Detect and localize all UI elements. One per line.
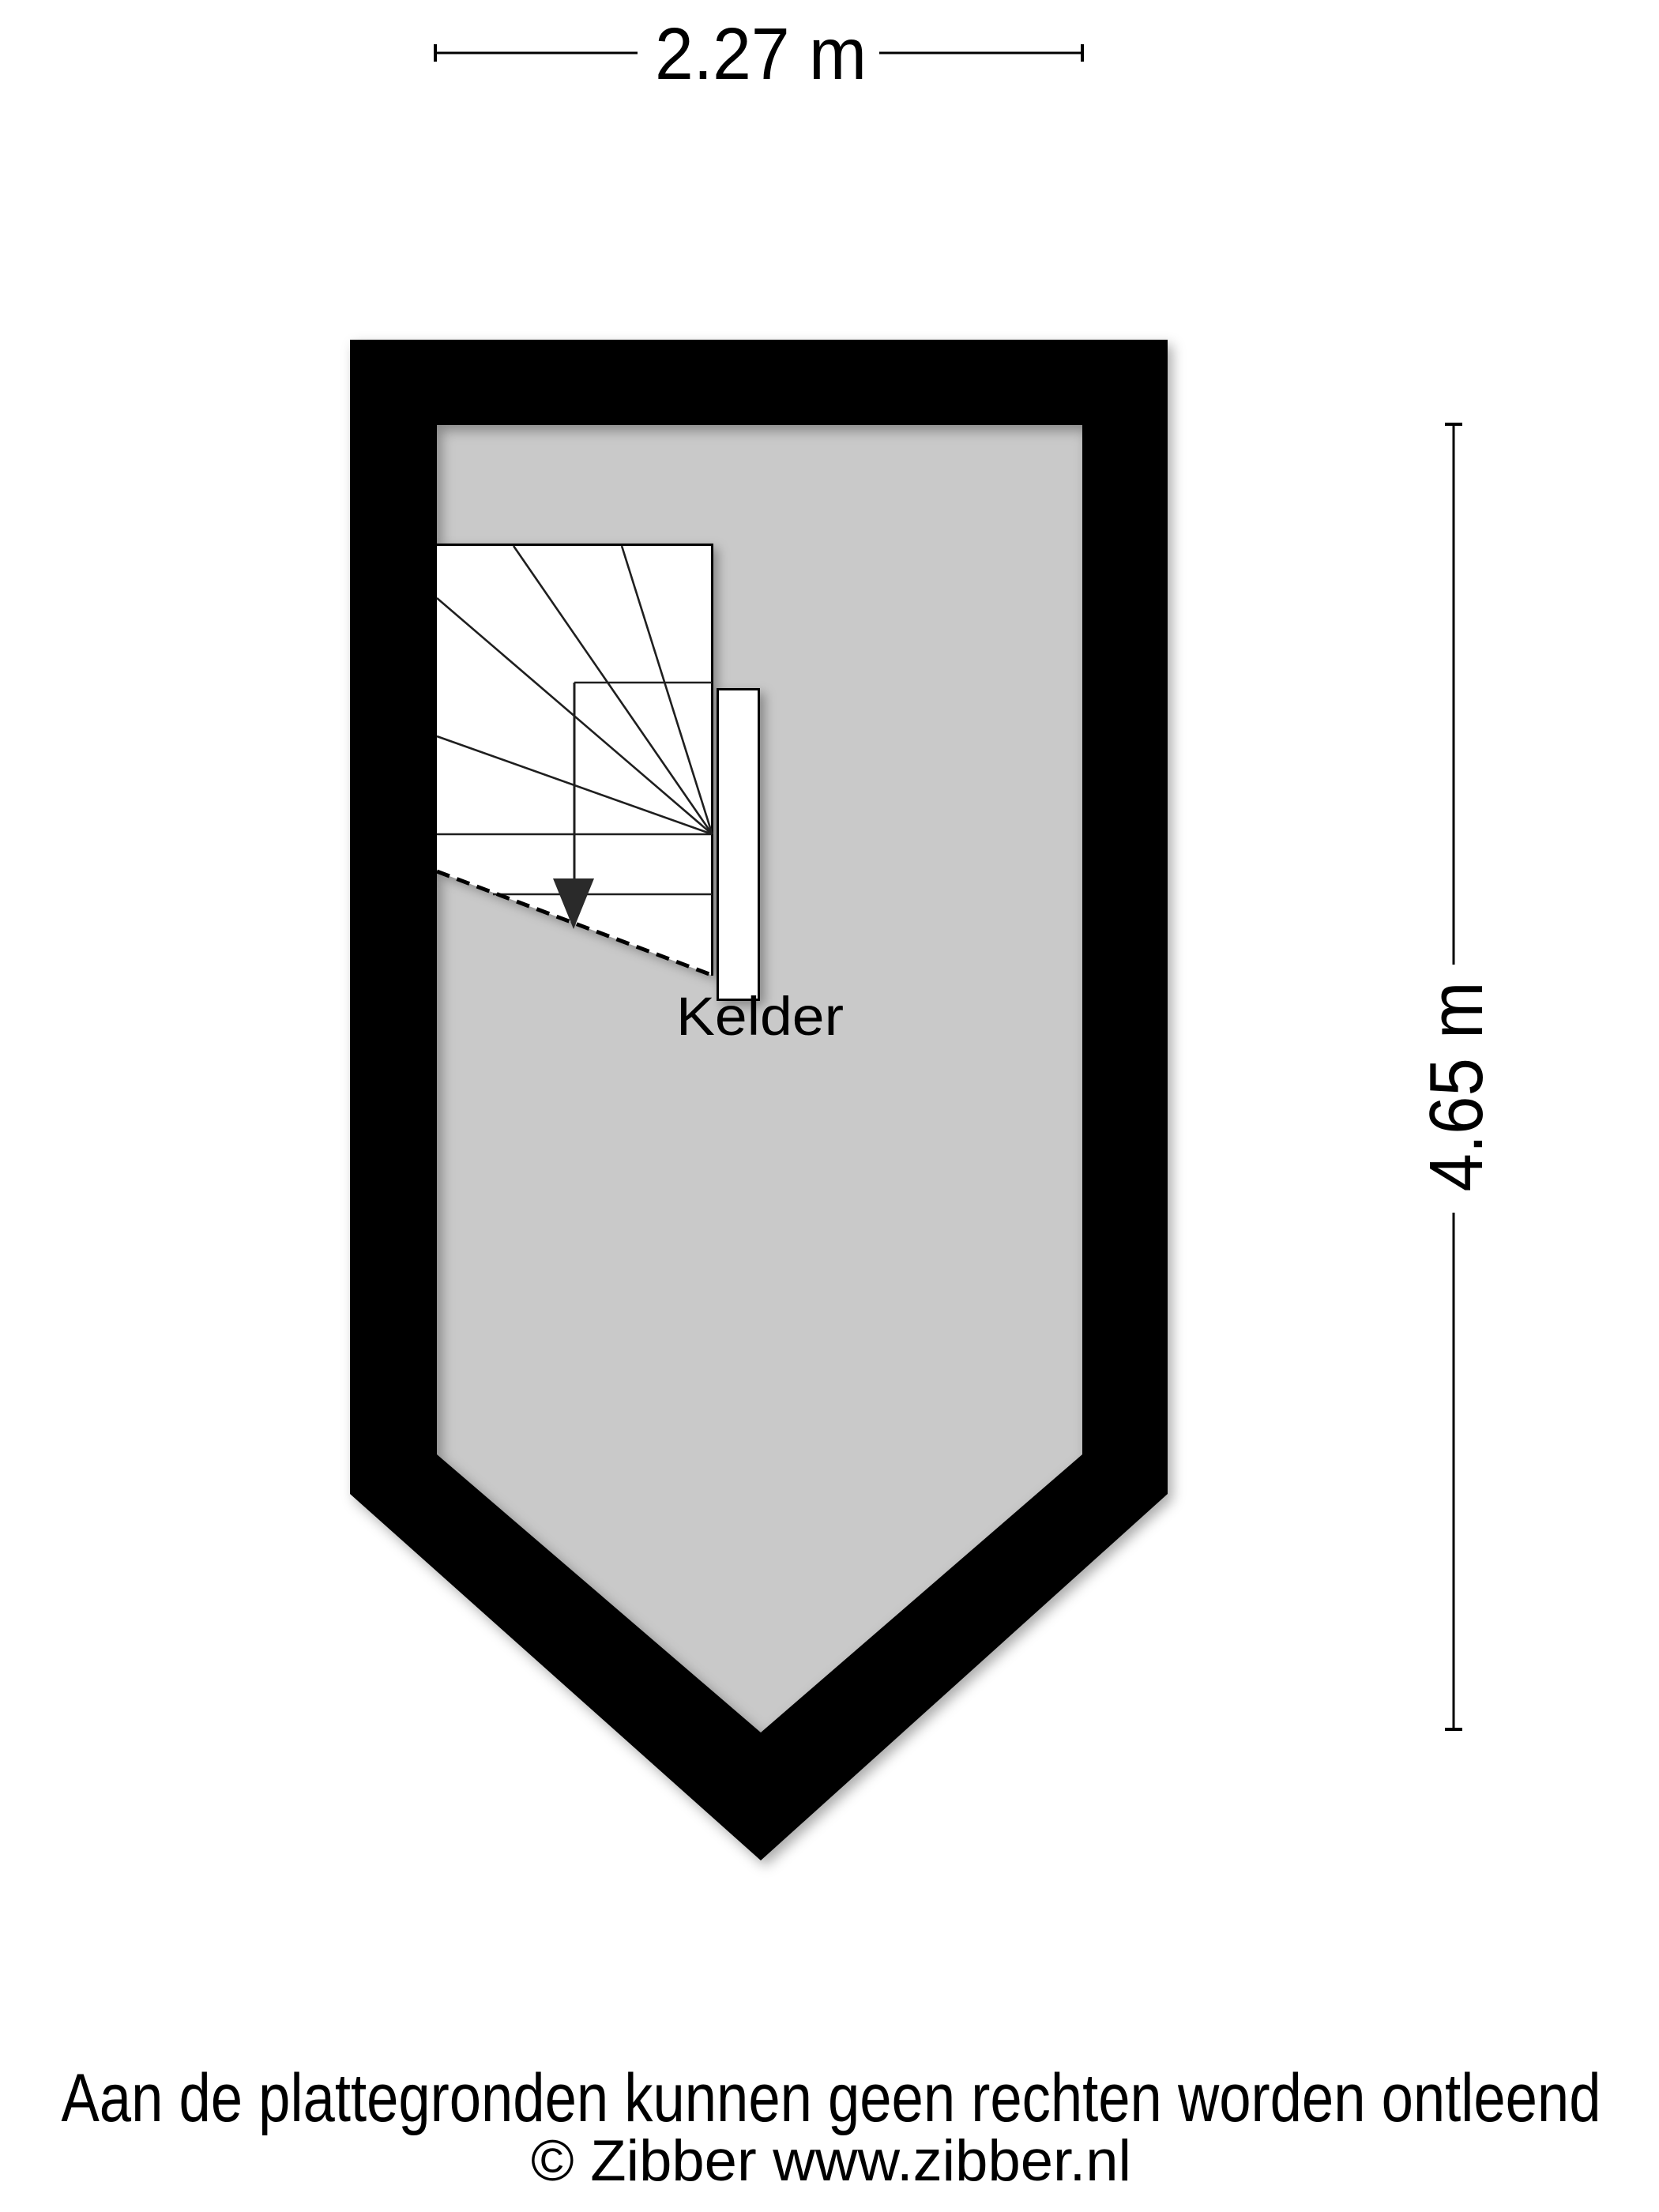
svg-text:Kelder: Kelder <box>676 986 844 1047</box>
svg-text:Aan de plattegronden kunnen ge: Aan de plattegronden kunnen geen rechten… <box>62 2060 1601 2136</box>
svg-text:2.27 m: 2.27 m <box>655 13 867 95</box>
svg-text:© Zibber www.zibber.nl: © Zibber www.zibber.nl <box>531 2129 1131 2193</box>
svg-text:4.65 m: 4.65 m <box>1414 982 1499 1192</box>
